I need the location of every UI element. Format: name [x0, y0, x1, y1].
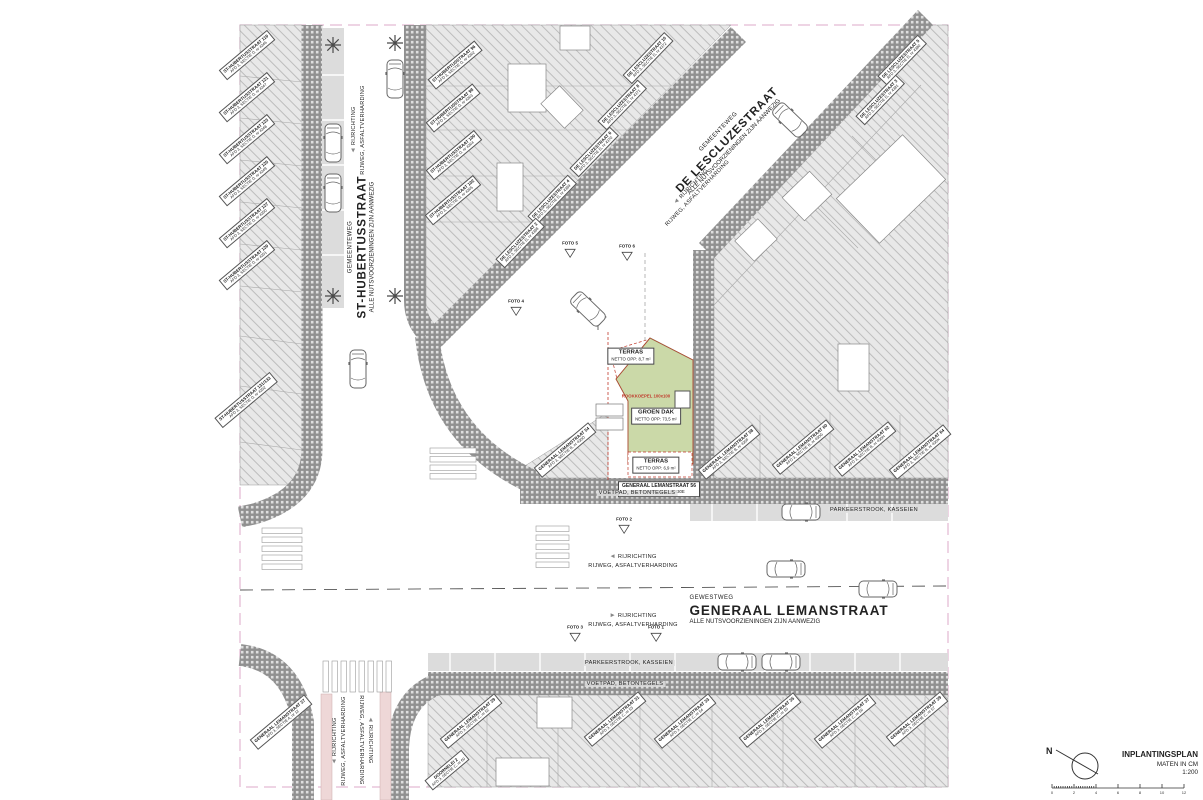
photo-marker: FOTO 4: [508, 299, 524, 320]
parcel-label: GENERAAL LEMANSTRAAT 62 AFD 3, SECTIE B,…: [834, 421, 897, 476]
photo-marker-label: FOTO 6: [619, 244, 635, 248]
green-roof-label: GROEN DAK NETTO OPP: 73,5 m²: [631, 408, 681, 425]
roof-title: GROEN DAK: [635, 410, 677, 417]
street-de-lescluzestraat: GEMEENTEWEG DE LESCLUZESTRAAT ALLE NUTSV…: [667, 79, 786, 201]
parcel-address: ST-HUBERTUSSTRAAT 102: [428, 178, 475, 219]
direction-text: RIJRICHTING: [618, 613, 657, 619]
parcel-address: DE LESCLUZESTRAAT 8: [601, 83, 641, 124]
parcel-label: GENERAAL LEMANSTRAAT 33 AFD 3, SECTIE C,…: [654, 693, 717, 748]
street-generaal-lemanstraat: GEWESTWEG GENERAAL LEMANSTRAAT ALLE NUTS…: [690, 595, 889, 627]
parcel-cadastre: AFD 3, SECTIE D, nr 4381: [862, 82, 901, 122]
parcel-address: GENERAAL LEMANSTRAAT 64: [892, 427, 945, 473]
parcel-cadastre: AFD 3, SECTIE D, nr 4352: [221, 379, 274, 425]
skylight-label: ROOKKOEPEL 100x100: [622, 394, 670, 399]
terrace-title: TERRAS: [611, 350, 650, 357]
parcel-address: GENERAAL LEMANSTRAAT 27: [253, 697, 306, 743]
parcel-label: ST-HUBERTUSSTRAAT 131/133 AFD 3, SECTIE …: [214, 372, 277, 428]
parcel-label: DE LESCLUZESTRAAT 3 AFD 3, SECTIE D, nr …: [855, 75, 904, 125]
parcel-label: ST-HUBERTUSSTRAAT 102 AFD 3, SECTIE D, n…: [425, 175, 482, 225]
surface-text: RIJWEG, ASFALTVERHARDING: [588, 621, 677, 629]
photo-marker: FOTO 6: [619, 244, 635, 265]
parcel-label: DOORNELEI 2 AFD 3, SECTIE C, nr 60: [424, 750, 469, 791]
terrace-bottom-label: TERRAS NETTO OPP: 6,9 m²: [632, 457, 679, 474]
parcel-address: ST-HUBERTUSSTRAAT 123: [222, 117, 269, 158]
parcel-cadastre: AFD 3, SECTIE D, nr 4370: [576, 134, 615, 174]
direction-arrow-icon: ◄: [350, 147, 357, 154]
photo-marker-icon: [510, 307, 522, 317]
parcel-cadastre: AFD 3, SECTIE D, nr 4347: [225, 79, 272, 119]
parcel-address: ST-HUBERTUSSTRAAT 119: [222, 33, 269, 74]
parking-strip-label: PARKEERSTROOK, KASSEIEN: [828, 507, 920, 513]
labels-layer: GEMEENTEWEG ST-HUBERTUSSTRAAT ALLE NUTSV…: [0, 0, 1203, 800]
street-name: DE LESCLUZESTRAAT: [673, 84, 781, 195]
parcel-cadastre: AFD 3, SECTIE D, nr 4348: [225, 121, 272, 161]
parcel-address: GENERAAL LEMANSTRAAT 35: [742, 695, 795, 741]
street-note: ALLE NUTSVOORZIENINGEN ZIJN AANWEZIG: [369, 176, 377, 319]
terrace-area: NETTO OPP: 6,9 m²: [636, 466, 675, 471]
plan-title: INPLANTINGSPLAN: [1122, 750, 1198, 761]
parcel-address: ST-HUBERTUSSTRAAT 129: [222, 243, 269, 284]
plan-units: MATEN IN CM: [1122, 761, 1198, 770]
parcel-address: ST-HUBERTUSSTRAAT 98: [429, 87, 474, 126]
parcel-cadastre: AFD 3, SECTIE D, nr 4351: [225, 247, 272, 287]
parcel-cadastre: AFD 3, SECTIE C, nr 55: [745, 699, 798, 744]
parcel-cadastre: AFD 3, SECTIE D, nr 4369: [534, 182, 573, 222]
parcel-cadastre: AFD 3, SECTIE D, nr 4350: [225, 205, 272, 245]
north-arrow-icon: [1052, 744, 1112, 784]
sidewalk-label: VOETPAD, BETONTEGELS: [585, 681, 666, 687]
parcel-address: DE LESCLUZESTRAAT 5: [881, 38, 921, 79]
parcel-label: ST-HUBERTUSSTRAAT 96 AFD 3, SECTIE D, nr…: [428, 41, 483, 90]
parcel-cadastre: AFD 3, SECTIE D, nr 4349: [225, 163, 272, 203]
direction-arrow-icon: ◄: [609, 553, 616, 560]
driving-direction-label: ◄ RIJRICHTING RIJWEG, ASFALTVERHARDING: [588, 552, 677, 570]
direction-arrow-icon: ◄: [331, 758, 338, 765]
parcel-cadastre: AFD 3, SECTIE B, nr 430H: [840, 428, 893, 473]
parcel-label: GENERAAL LEMANSTRAAT 31 AFD 3, SECTIE C,…: [584, 691, 647, 746]
scale-bar: 024681012: [1038, 782, 1200, 798]
parcel-label: GENERAAL LEMANSTRAAT 58 AFD 3, SECTIE B,…: [698, 424, 761, 479]
parcel-label: DE LESCLUZESTRAAT 8 AFD 3, SECTIE D, nr …: [597, 80, 646, 130]
photo-marker-icon: [569, 633, 581, 643]
driving-direction-label: ◄ RIJRICHTING RIJWEG, ASFALTVERHARDING: [357, 695, 375, 784]
photo-marker-icon: [650, 633, 662, 643]
photo-marker: FOTO 2: [616, 517, 632, 538]
parcel-label: GENERAAL LEMANSTRAAT 37 AFD 3, SECTIE C,…: [814, 693, 877, 748]
photo-marker-label: FOTO 2: [616, 517, 632, 521]
parcel-label: GENERAAL LEMANSTRAAT 35 AFD 3, SECTIE C,…: [739, 692, 802, 747]
parcel-cadastre: AFD 3, SECTIE D, nr 4368: [502, 225, 541, 265]
scale-number: 0: [1051, 790, 1054, 795]
parcel-address: GENERAAL LEMANSTRAAT 54: [537, 425, 590, 471]
surface-text: RIJWEG, ASFALTVERHARDING: [588, 562, 677, 570]
surface-text: RIJWEG, ASFALTVERHARDING: [359, 85, 367, 174]
parcel-label: ST-HUBERTUSSTRAAT 100 AFD 3, SECTIE D, n…: [426, 130, 483, 180]
parcel-cadastre: AFD 3, SECTIE B, nr 430K: [895, 431, 948, 476]
street-st-hubertusstraat: GEMEENTEWEG ST-HUBERTUSSTRAAT ALLE NUTSV…: [347, 176, 376, 319]
surface-text: RIJWEG, ASFALTVERHARDING: [340, 696, 348, 785]
parcel-cadastre: AFD 3, SECTIE B, nr 430G: [778, 426, 831, 471]
parcel-label: ST-HUBERTUSSTRAAT 98 AFD 3, SECTIE D, nr…: [426, 84, 481, 133]
parcel-address: GENERAAL LEMANSTRAAT 33: [657, 696, 710, 742]
parcel-address: ST-HUBERTUSSTRAAT 125: [222, 159, 269, 200]
parcel-cadastre: AFD 3, SECTIE D, nr 4365: [431, 182, 478, 222]
parcel-cadastre: AFD 3, SECTIE C, nr 54: [660, 700, 713, 745]
direction-text: RIJRICHTING: [332, 717, 338, 756]
sidewalk-label: VOETPAD, BETONTEGELS: [597, 490, 678, 496]
direction-arrow-icon: ►: [609, 612, 616, 619]
parcel-address: GENERAAL LEMANSTRAAT 60: [775, 422, 828, 468]
parcel-label: GENERAAL LEMANSTRAAT 39 AFD 3, SECTIE C,…: [886, 691, 949, 746]
parcel-address: DE LESCLUZESTRAAT 2: [499, 221, 539, 262]
parcel-address: ST-HUBERTUSSTRAAT 127: [222, 201, 269, 242]
parcel-address: DOORNELEI 2: [428, 753, 464, 784]
parcel-cadastre: AFD 3, SECTIE D, nr 4380: [884, 42, 923, 82]
plan-scale: 1:200: [1122, 769, 1198, 778]
parcel-cadastre: AFD 3, SECTIE D, nr 4371: [604, 87, 643, 127]
surface-text: RIJWEG, ASFALTVERHARDING: [357, 695, 365, 784]
parcel-cadastre: AFD 3, SECTIE D, nr 4346: [225, 37, 272, 77]
legend-text: INPLANTINGSPLAN MATEN IN CM 1:200: [1122, 750, 1198, 778]
parcel-address: ST-HUBERTUSSTRAAT 121: [222, 75, 269, 116]
parcel-cadastre: AFD 3, SECTIE A, nr 12: [256, 701, 309, 746]
driving-direction-label: ► RIJRICHTING RIJWEG, ASFALTVERHARDING: [588, 611, 677, 629]
roof-area: NETTO OPP: 73,5 m²: [635, 417, 677, 422]
photo-marker-label: FOTO 5: [562, 241, 578, 245]
parcel-address: DE LESCLUZESTRAAT 3: [859, 78, 899, 119]
photo-marker: FOTO 1: [648, 625, 664, 646]
parcel-address: DE LESCLUZESTRAAT 6: [573, 130, 613, 171]
parcel-label: GENERAAL LEMANSTRAAT 64 AFD 3, SECTIE B,…: [889, 424, 952, 479]
parcel-cadastre: AFD 3, SECTIE D, nr 4364: [432, 137, 479, 177]
street-name: ST-HUBERTUSSTRAAT: [355, 176, 369, 319]
scale-number: 8: [1139, 790, 1142, 795]
parcel-address: GENERAAL LEMANSTRAAT 39: [889, 694, 942, 740]
photo-marker-label: FOTO 1: [648, 625, 664, 629]
parcel-address: ST-HUBERTUSSTRAAT 96: [431, 44, 476, 83]
parcel-cadastre: AFD 3, SECTIE D, nr 4362: [434, 48, 479, 87]
scale-number: 12: [1182, 790, 1187, 795]
direction-text: RIJRICHTING: [367, 725, 373, 764]
terrace-area: NETTO OPP: 8,7 m²: [611, 357, 650, 362]
parcel-address: ST-HUBERTUSSTRAAT 131/133: [218, 375, 272, 421]
parcel-label: DE LESCLUZESTRAAT 5 AFD 3, SECTIE D, nr …: [877, 35, 926, 85]
parcel-address: DE LESCLUZESTRAAT 4: [531, 178, 571, 219]
photo-marker: FOTO 3: [567, 625, 583, 646]
parcel-label: GENERAAL LEMANSTRAAT 54 AFD 3, SECTIE B,…: [534, 422, 597, 477]
parcel-address: GENERAAL LEMANSTRAAT 31: [587, 694, 640, 740]
parcel-address: GENERAAL LEMANSTRAAT 58: [701, 427, 754, 473]
parking-strip-label: PARKEERSTROOK, KASSEIEN: [583, 660, 675, 666]
site-plan: GEMEENTEWEG ST-HUBERTUSSTRAAT ALLE NUTSV…: [0, 0, 1203, 800]
terrace-title: TERRAS: [636, 459, 675, 466]
parcel-cadastre: AFD 3, SECTIE C, nr 57: [892, 698, 945, 743]
parcel-address: GENERAAL LEMANSTRAAT 62: [837, 424, 890, 470]
street-category: GEWESTWEG: [690, 595, 889, 603]
photo-marker-icon: [618, 525, 630, 535]
scale-number: 4: [1095, 790, 1098, 795]
parcel-cadastre: AFD 3, SECTIE D, nr 4363: [432, 91, 477, 130]
terrace-top-label: TERRAS NETTO OPP: 8,7 m²: [607, 348, 654, 365]
direction-arrow-icon: ◄: [367, 716, 374, 723]
parcel-address: GENERAAL LEMANSTRAAT 29: [443, 696, 496, 742]
parcel-label: DE LESCLUZESTRAAT 10 AFD 3, SECTIE D, nr…: [623, 32, 674, 84]
legend: N INPLANTINGSPLAN MATEN IN CM 1:200 0246…: [1038, 742, 1200, 798]
driving-direction-label: ◄ RIJRICHTING RIJWEG, ASFALTVERHARDING: [349, 85, 367, 174]
scale-number: 10: [1160, 790, 1165, 795]
photo-marker: FOTO 5: [562, 241, 578, 262]
photo-marker-icon: [564, 249, 576, 259]
direction-text: RIJRICHTING: [618, 554, 657, 560]
scale-number: 2: [1073, 790, 1076, 795]
parcel-cadastre: AFD 3, SECTIE C, nr 56: [820, 700, 873, 745]
photo-marker-label: FOTO 4: [508, 299, 524, 303]
parcel-cadastre: AFD 3, SECTIE C, nr 52: [446, 700, 499, 745]
parcel-label: GENERAAL LEMANSTRAAT 27 AFD 3, SECTIE A,…: [250, 694, 313, 749]
scale-number: 6: [1117, 790, 1120, 795]
parcel-cadastre: AFD 3, SECTIE B, nr 430F: [704, 431, 757, 476]
parcel-label: DE LESCLUZESTRAAT 2 AFD 3, SECTIE D, nr …: [495, 218, 544, 268]
parcel-cadastre: AFD 3, SECTIE B, nr 430D: [540, 429, 593, 474]
parcel-label: DE LESCLUZESTRAAT 6 AFD 3, SECTIE D, nr …: [569, 127, 618, 177]
parcel-address: ST-HUBERTUSSTRAAT 100: [429, 133, 476, 174]
parcel-cadastre: AFD 3, SECTIE C, nr 53: [590, 698, 643, 743]
parcel-cadastre: AFD 3, SECTIE D, nr 4372: [629, 39, 670, 81]
parcel-label: GENERAAL LEMANSTRAAT 29 AFD 3, SECTIE C,…: [440, 693, 503, 748]
street-name: GENERAAL LEMANSTRAAT: [690, 603, 889, 620]
direction-text: RIJRICHTING: [351, 106, 357, 145]
parcel-label: GENERAAL LEMANSTRAAT 60 AFD 3, SECTIE B,…: [772, 419, 835, 474]
driving-direction-label: ◄ RIJRICHTING RIJWEG, ASFALTVERHARDING: [330, 696, 348, 785]
photo-marker-label: FOTO 3: [567, 625, 583, 629]
parcel-address: GENERAAL LEMANSTRAAT 37: [817, 696, 870, 742]
street-category: GEMEENTEWEG: [347, 176, 355, 319]
parcel-address: DE LESCLUZESTRAAT 10: [626, 35, 667, 78]
street-note: ALLE NUTSVOORZIENINGEN ZIJN AANWEZIG: [690, 619, 889, 627]
photo-marker-icon: [621, 252, 633, 262]
